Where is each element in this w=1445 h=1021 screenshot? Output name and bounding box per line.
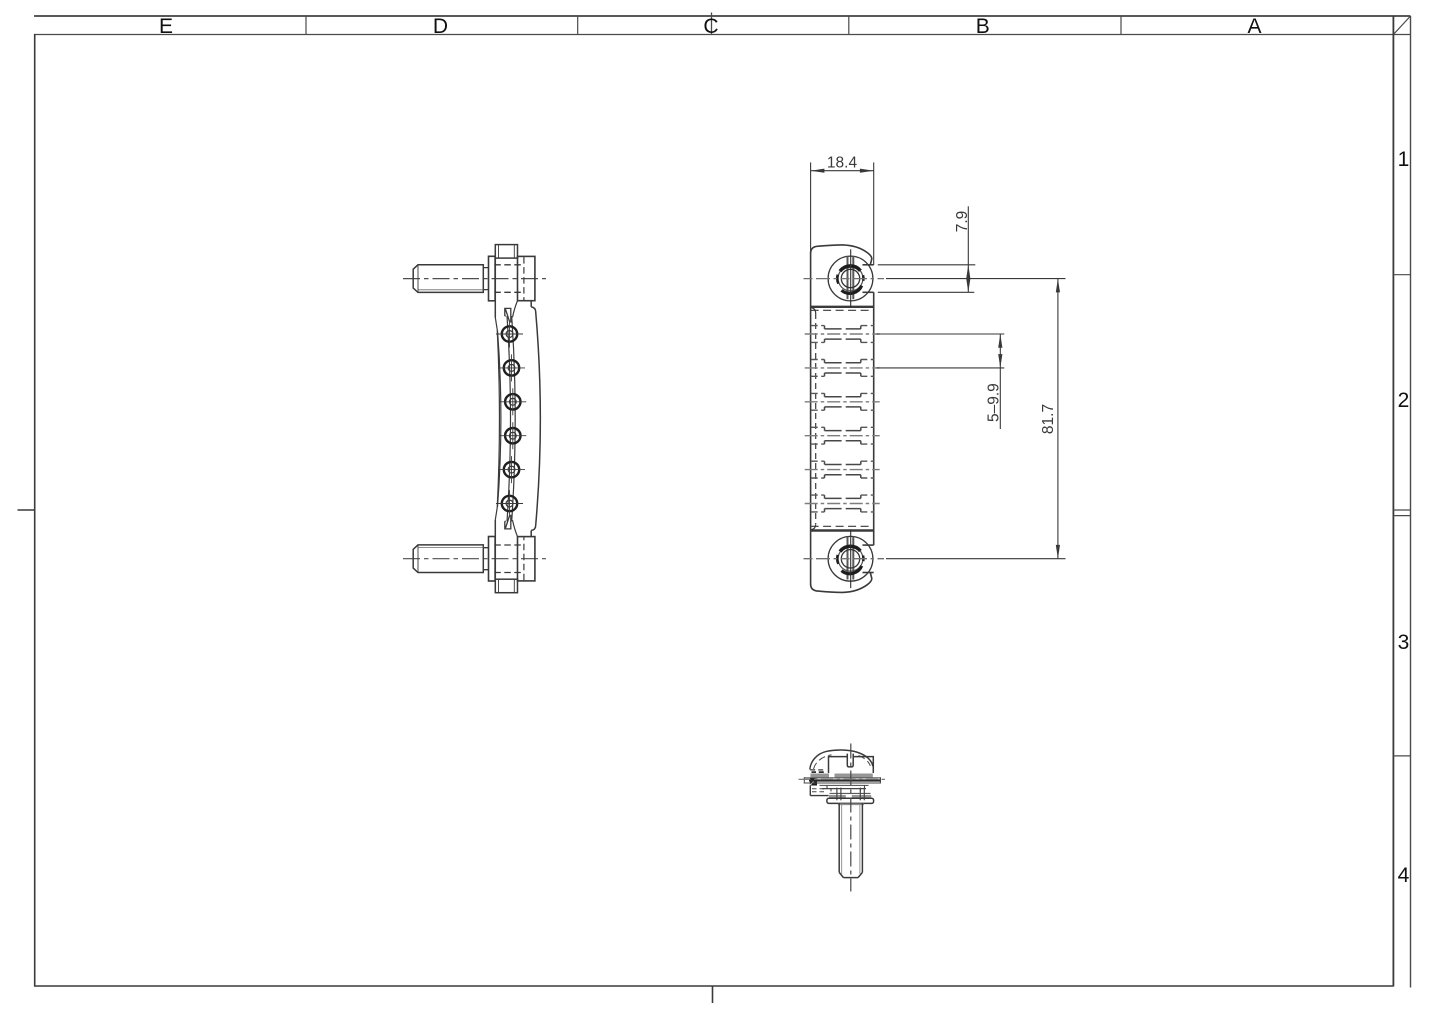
svg-text:E: E xyxy=(159,15,173,38)
svg-text:7.9: 7.9 xyxy=(954,211,971,233)
svg-text:D: D xyxy=(433,15,448,38)
svg-text:1: 1 xyxy=(1398,148,1410,171)
svg-text:A: A xyxy=(1247,15,1261,38)
svg-text:81.7: 81.7 xyxy=(1040,404,1057,434)
svg-text:C: C xyxy=(703,15,718,38)
svg-text:4: 4 xyxy=(1398,864,1410,887)
svg-text:3: 3 xyxy=(1398,631,1410,654)
svg-text:18.4: 18.4 xyxy=(827,155,858,172)
svg-text:B: B xyxy=(976,15,990,38)
svg-text:2: 2 xyxy=(1398,389,1410,412)
svg-text:5–9.9: 5–9.9 xyxy=(986,383,1003,422)
